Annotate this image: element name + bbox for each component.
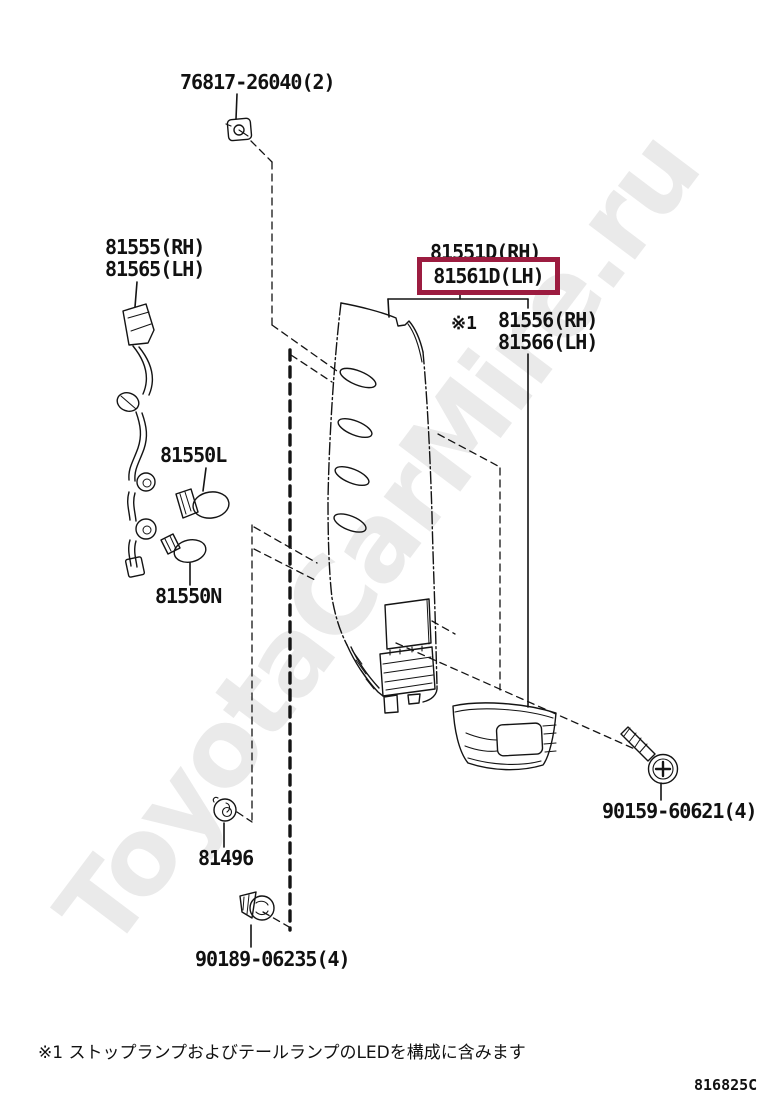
label-bulb-l[interactable]: 81550L — [160, 444, 226, 466]
label-lamp-rh[interactable]: 81556(RH) — [498, 309, 597, 331]
footnote-ref-marker: ※1 — [451, 313, 477, 335]
screw-icon — [621, 727, 678, 784]
grommet-icon — [213, 797, 236, 821]
figure-code: 816825C — [694, 1076, 757, 1094]
label-lamp-lh[interactable]: 81566(LH) — [498, 331, 597, 353]
label-clip-76817[interactable]: 76817-26040(2) — [180, 71, 335, 93]
label-bulb-n[interactable]: 81550N — [155, 585, 221, 607]
label-harness-rh[interactable]: 81555(RH) — [105, 236, 204, 258]
parts-diagram-page: ToyotaCarMire.ru — [0, 0, 760, 1112]
footnote: ※1 ストップランプおよびテールランプのLEDを構成に含みます — [38, 1038, 526, 1063]
label-harness-lh[interactable]: 81565(LH) — [105, 258, 204, 280]
trim-clip-icon — [226, 118, 252, 141]
label-clip-90189[interactable]: 90189-06235(4) — [195, 948, 350, 970]
pillar-garnish-drawing — [328, 303, 437, 713]
tail-lamp-lens-drawing — [453, 703, 556, 770]
leader-lines — [135, 94, 661, 947]
label-grommet[interactable]: 81496 — [198, 847, 253, 869]
bulb-81550n-icon — [161, 534, 208, 565]
bulb-81550l-icon — [176, 489, 231, 520]
wire-harness-drawing — [115, 304, 156, 577]
highlighted-part-box[interactable]: 81561D(LH) — [417, 257, 560, 295]
label-screw-90159[interactable]: 90159-60621(4) — [602, 800, 757, 822]
diagram-line-art — [0, 0, 760, 1112]
label-pillar-lh-highlighted[interactable]: 81561D(LH) — [433, 265, 543, 287]
